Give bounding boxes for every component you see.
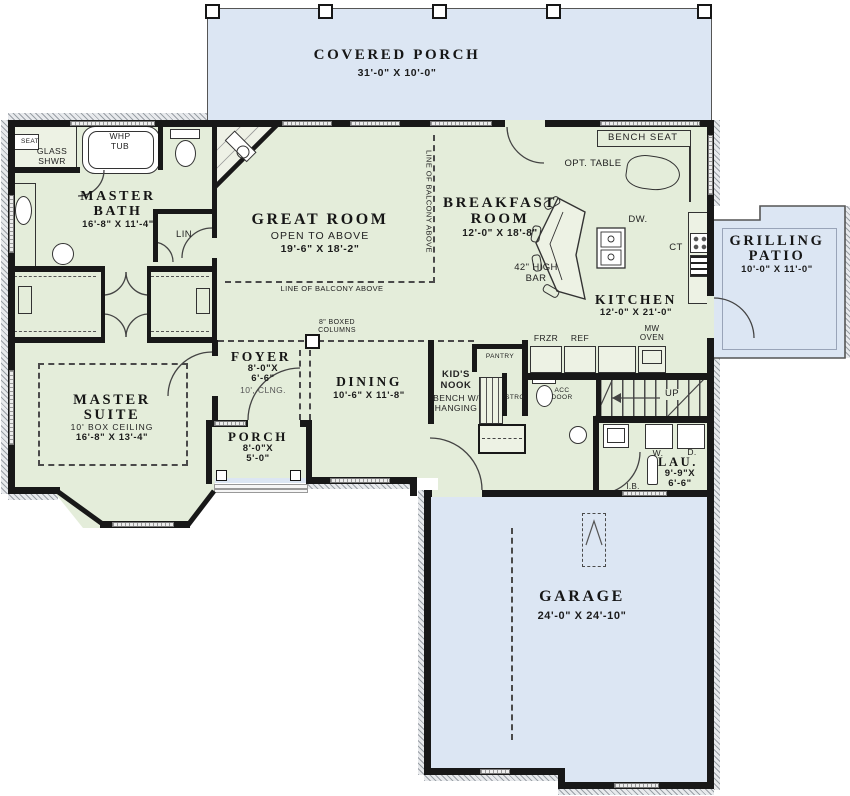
shower-seat-label: SEAT [21, 138, 39, 145]
window-top-4 [430, 121, 492, 126]
breakfast-room-name: BREAKFAST ROOM [443, 196, 557, 228]
wall-pantry-left [472, 344, 477, 372]
garage-dims: 24'-0" X 24'-10" [538, 610, 627, 622]
freezer-label: FRZR [534, 334, 558, 344]
window-top-3 [350, 121, 400, 126]
attic-ladder-chevron [586, 521, 602, 545]
window-left-bath [9, 195, 14, 253]
dishwasher-label: DW. [628, 215, 647, 226]
wall-porch-right [306, 420, 312, 484]
dining-dims: 10'-6" X 11'-8" [333, 391, 405, 401]
great-room-dims: 19'-6" X 18'-2" [281, 244, 360, 256]
wall-right [707, 120, 714, 788]
wall-closet-hall-left [101, 266, 105, 343]
kids-nook-name: KID'S NOOK [441, 370, 472, 391]
floor-plan: COVERED PORCH 31'-0" X 10'-0" MASTER BAT… [0, 0, 850, 796]
wall-bath-great-upper [212, 120, 217, 238]
window-dining [330, 478, 390, 483]
stairs-up-label: UP [663, 389, 681, 400]
boxed-columns-label: 8" BOXED COLUMNS [318, 319, 356, 335]
master-suite-dims: 16'-8" X 13'-4" [76, 433, 148, 443]
balcony-line-h-label: LINE OF BALCONY ABOVE [278, 285, 387, 293]
opt-table-label: OPT. TABLE [565, 159, 622, 170]
wall-closet-bottom-right [149, 337, 212, 343]
window-top-1 [70, 121, 155, 126]
front-door-opening [248, 420, 300, 427]
covered-porch-name: COVERED PORCH [314, 48, 481, 63]
wall-laundry-left [593, 416, 599, 497]
foyer-name: FOYER [231, 350, 291, 364]
boxed-column [305, 334, 320, 349]
great-room-name: GREAT ROOM [252, 212, 389, 228]
window-porch [214, 421, 246, 426]
foyer-ceiling-note: 10', CLNG. [240, 386, 286, 396]
wall-powder-right [596, 373, 601, 416]
patio-door-opening [707, 296, 714, 338]
stairs-marks [596, 376, 706, 416]
bench-seat-label: BENCH SEAT [608, 133, 678, 144]
garage-door-opening [432, 490, 482, 497]
garage-name: GARAGE [539, 589, 625, 605]
covered-porch-dims: 31'-0" X 10'-0" [358, 68, 437, 80]
window-top-bench [600, 121, 700, 126]
breakfast-room-dims: 12'-0" X 18'-8" [462, 228, 538, 239]
laundry-dims: 9'-9"X 6'-6" [665, 469, 695, 490]
foyer-dims: 8'-0"X 6'-6" [248, 364, 278, 385]
master-suite-name: MASTER SUITE [73, 393, 151, 423]
wall-tub-right [158, 120, 163, 170]
window-top-2 [282, 121, 332, 126]
window-garage-1 [480, 769, 510, 774]
wall-lin-top [153, 209, 212, 214]
corner-fireplace [215, 125, 277, 187]
kids-nook-note: BENCH W/ HANGING [433, 394, 479, 413]
kitchen-name: KITCHEN [595, 293, 677, 307]
wall-pantry-top [472, 344, 526, 349]
wall-garage-left [424, 490, 431, 775]
porch-post-right [290, 470, 301, 481]
cooktop-label: CT [669, 243, 682, 254]
ironing-board-label: I.B. [626, 483, 640, 492]
porch-post-left [216, 470, 227, 481]
master-bath-dims: 16'-8" X 11'-4" [82, 220, 154, 230]
glass-shower-label: GLASS SHWR [37, 147, 67, 166]
porch-column-4 [546, 4, 561, 19]
wall-appliance [522, 373, 714, 380]
window-garage-2 [614, 783, 659, 788]
kitchen-dims: 12'-0" X 21'-0" [600, 308, 672, 318]
window-right-breakfast [708, 135, 713, 195]
dining-name: DINING [336, 375, 402, 389]
refrigerator-label: REF [571, 334, 589, 344]
wall-dining-stub [410, 477, 417, 496]
wall-closet-top-right [149, 266, 212, 272]
wall-foyer-suite-1 [212, 340, 218, 356]
porch-dims: 8'-0"X 5'-0" [243, 444, 273, 465]
master-bath-name: MASTER BATH [80, 190, 156, 219]
wall-closet-bottom-left [8, 337, 103, 343]
high-bar-label: 42" HIGH BAR [514, 263, 558, 284]
breakfast-door-opening [505, 120, 545, 127]
storage-label: STRG [505, 394, 525, 401]
porch-column-1 [205, 4, 220, 19]
laundry-name: LAU. [658, 456, 698, 469]
pantry-label: PANTRY [486, 353, 514, 360]
grilling-patio-name: GRILLING PATIO [730, 234, 825, 264]
porch-name: PORCH [228, 430, 288, 443]
linen-label: LIN [176, 230, 192, 241]
wall-msuite-bottom [8, 487, 60, 494]
wall-closet-hall-right [147, 266, 151, 343]
wall-stairs-bottom [593, 416, 714, 423]
patio-outline [714, 206, 845, 358]
balcony-line-v-label: LINE OF BALCONY ABOVE [424, 150, 432, 253]
window-bay [112, 522, 174, 527]
wall-porch-left [206, 420, 212, 484]
porch-column-2 [318, 4, 333, 19]
whp-tub-label: WHP TUB [109, 132, 130, 151]
wall-bath-great-lower [212, 258, 217, 342]
porch-column-5 [697, 4, 712, 19]
bay-window-walls [57, 491, 214, 525]
porch-column-3 [432, 4, 447, 19]
window-left-suite [9, 370, 14, 445]
wall-closet-top-left [8, 266, 103, 272]
mw-oven-label: MW OVEN [640, 325, 664, 343]
grilling-patio-dims: 10'-0" X 11'-0" [741, 265, 813, 275]
acc-door-label: ACC DOOR [551, 387, 572, 402]
wall-shower-bottom [10, 167, 80, 173]
great-room-note: OPEN TO ABOVE [271, 231, 369, 243]
